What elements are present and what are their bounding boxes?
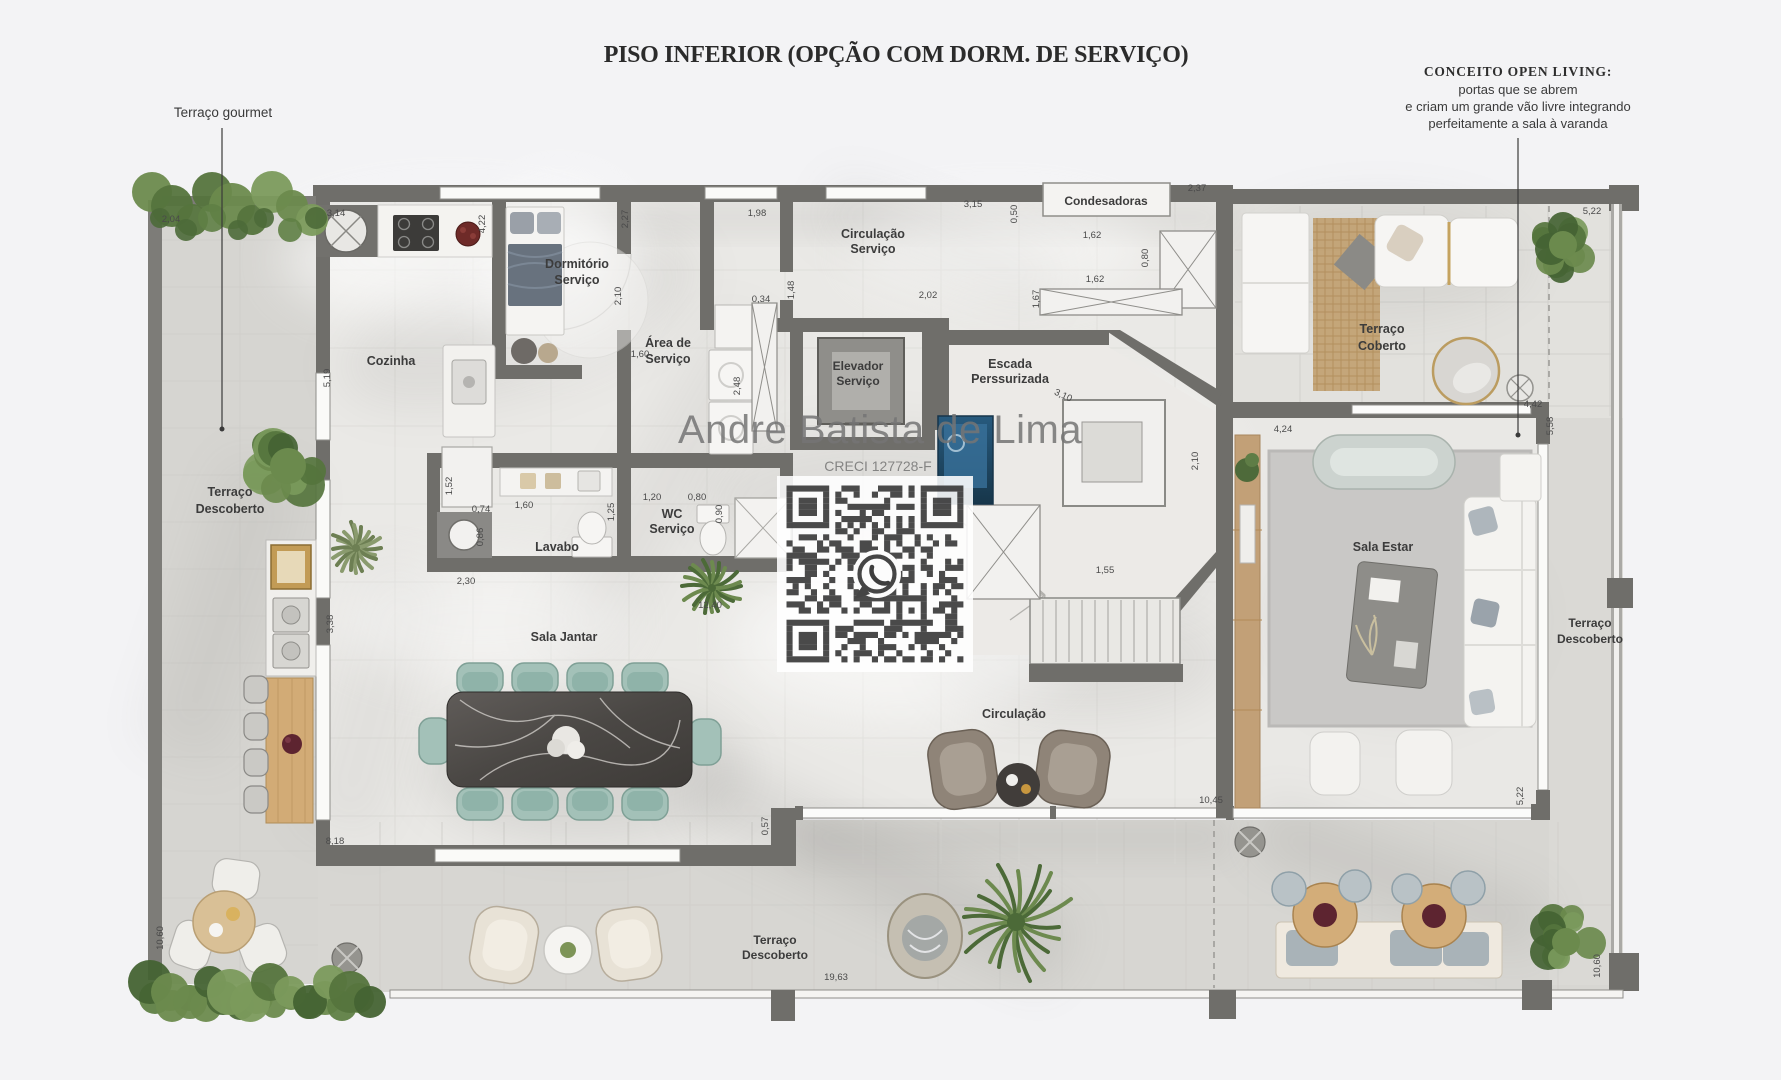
svg-text:0,86: 0,86 [475, 528, 486, 547]
svg-text:0,34: 0,34 [752, 294, 771, 305]
svg-text:Perssurizada: Perssurizada [971, 372, 1050, 386]
svg-text:Área de: Área de [645, 335, 691, 350]
svg-text:Terraço: Terraço [1360, 322, 1405, 336]
svg-text:8,18: 8,18 [326, 836, 345, 847]
svg-text:Descoberto: Descoberto [196, 502, 265, 516]
svg-text:4,24: 4,24 [1274, 424, 1293, 435]
svg-text:0,57: 0,57 [760, 817, 771, 836]
svg-text:12,40: 12,40 [698, 600, 722, 611]
svg-text:3,38: 3,38 [325, 615, 336, 634]
svg-text:Terraço: Terraço [753, 933, 796, 947]
svg-text:Lavabo: Lavabo [535, 540, 579, 554]
svg-text:4,22: 4,22 [477, 215, 488, 234]
svg-text:Circulação: Circulação [841, 227, 905, 241]
svg-text:1,20: 1,20 [643, 492, 662, 503]
svg-text:Serviço: Serviço [645, 352, 691, 366]
svg-text:Elevador: Elevador [833, 359, 884, 373]
svg-text:2,30: 2,30 [457, 576, 476, 587]
svg-text:0,80: 0,80 [1140, 249, 1151, 268]
svg-text:3,15: 3,15 [964, 199, 983, 210]
svg-text:0,50: 0,50 [1009, 205, 1020, 224]
svg-text:1,55: 1,55 [1096, 565, 1115, 576]
svg-text:Dormitório: Dormitório [545, 257, 609, 271]
svg-text:5,58: 5,58 [1545, 417, 1556, 436]
svg-text:2,27: 2,27 [620, 210, 631, 229]
svg-text:Serviço: Serviço [554, 273, 600, 287]
svg-text:2,02: 2,02 [919, 290, 938, 301]
svg-text:CONCEITO OPEN LIVING:: CONCEITO OPEN LIVING: [1424, 64, 1612, 79]
svg-text:Serviço: Serviço [850, 242, 896, 256]
svg-text:PISO INFERIOR (OPÇÃO COM DORM.: PISO INFERIOR (OPÇÃO COM DORM. DE SERVIÇ… [604, 42, 1189, 68]
svg-text:1,25: 1,25 [606, 503, 617, 522]
svg-text:Condesadoras: Condesadoras [1064, 194, 1148, 208]
svg-text:1,52: 1,52 [444, 477, 455, 496]
svg-text:Circulação: Circulação [982, 707, 1046, 721]
svg-text:Terraço: Terraço [1568, 616, 1611, 630]
svg-text:1,60: 1,60 [631, 349, 650, 360]
svg-text:2,10: 2,10 [613, 287, 624, 306]
svg-text:10,45: 10,45 [1199, 795, 1223, 806]
svg-text:1,98: 1,98 [748, 208, 767, 219]
svg-text:Terraço: Terraço [208, 485, 253, 499]
svg-text:3,14: 3,14 [327, 208, 346, 219]
svg-text:Sala Jantar: Sala Jantar [531, 630, 598, 644]
svg-text:1,67: 1,67 [1031, 290, 1042, 309]
svg-text:Descoberto: Descoberto [1557, 632, 1623, 646]
svg-text:Descoberto: Descoberto [742, 948, 808, 962]
svg-text:0,74: 0,74 [472, 504, 491, 515]
svg-text:2,10: 2,10 [1190, 452, 1201, 471]
svg-text:e criam um grande vão livre in: e criam um grande vão livre integrando [1405, 99, 1630, 114]
svg-text:perfeitamente a sala à varanda: perfeitamente a sala à varanda [1428, 116, 1608, 131]
svg-text:Terraço gourmet: Terraço gourmet [174, 105, 273, 120]
svg-text:5,22: 5,22 [1515, 787, 1526, 806]
svg-text:0,80: 0,80 [688, 492, 707, 503]
svg-text:5,22: 5,22 [1583, 206, 1602, 217]
svg-text:Andre Batista de Lima: Andre Batista de Lima [678, 408, 1082, 452]
svg-text:0,90: 0,90 [714, 505, 725, 524]
svg-text:1,48: 1,48 [786, 281, 797, 300]
svg-text:1,62: 1,62 [1086, 274, 1105, 285]
svg-text:2,04: 2,04 [162, 214, 181, 225]
svg-text:WC: WC [662, 507, 683, 521]
svg-text:1,60: 1,60 [515, 500, 534, 511]
svg-text:Sala Estar: Sala Estar [1353, 540, 1414, 554]
svg-text:Escada: Escada [988, 357, 1033, 371]
svg-text:portas que se abrem: portas que se abrem [1458, 82, 1577, 97]
svg-text:CRECI 127728-F: CRECI 127728-F [824, 458, 931, 474]
svg-text:19,63: 19,63 [824, 972, 848, 983]
svg-text:4,42: 4,42 [1524, 399, 1543, 410]
svg-text:Serviço: Serviço [836, 374, 879, 388]
svg-text:10,60: 10,60 [1592, 954, 1603, 978]
svg-text:Serviço: Serviço [649, 522, 695, 536]
svg-text:1,62: 1,62 [1083, 230, 1102, 241]
svg-text:10,60: 10,60 [155, 926, 166, 950]
svg-text:2,37: 2,37 [1188, 183, 1207, 194]
svg-text:2,48: 2,48 [732, 377, 743, 396]
svg-text:Coberto: Coberto [1358, 339, 1406, 353]
svg-text:Cozinha: Cozinha [367, 354, 417, 368]
svg-text:5,19: 5,19 [322, 369, 333, 388]
